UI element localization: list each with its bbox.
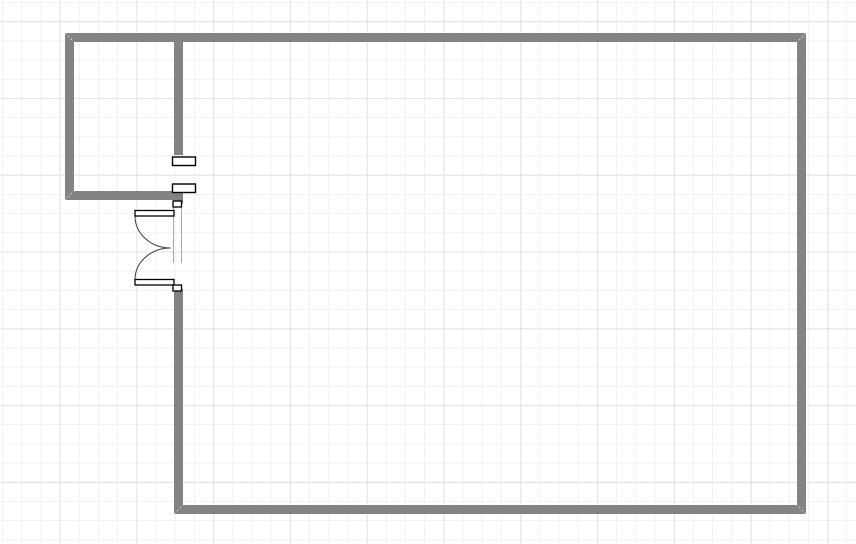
diagram-stage (0, 0, 856, 544)
door-swing-arc-bottom (135, 248, 171, 280)
right-wall[interactable] (797, 33, 806, 514)
top-wall[interactable] (65, 33, 806, 42)
window-block-upper[interactable] (173, 157, 196, 166)
door-frame-block-bottom (173, 285, 182, 291)
small-room-bottom-wall[interactable] (65, 191, 183, 200)
divider-wall-upper[interactable] (174, 42, 183, 155)
walls-group (65, 33, 806, 514)
window-block-lower[interactable] (173, 184, 196, 193)
door-frame-block-top (173, 201, 182, 207)
bottom-wall[interactable] (174, 505, 806, 514)
door-swing-arc-top (135, 216, 171, 248)
door-leaf-top (135, 211, 174, 217)
small-room-left-wall[interactable] (65, 33, 74, 200)
windows-group (173, 157, 196, 193)
double-swing-door[interactable] (135, 201, 182, 291)
floorplan-canvas[interactable] (0, 0, 856, 544)
big-room-left-wall[interactable] (174, 289, 183, 514)
door-leaf-bottom (135, 280, 174, 286)
